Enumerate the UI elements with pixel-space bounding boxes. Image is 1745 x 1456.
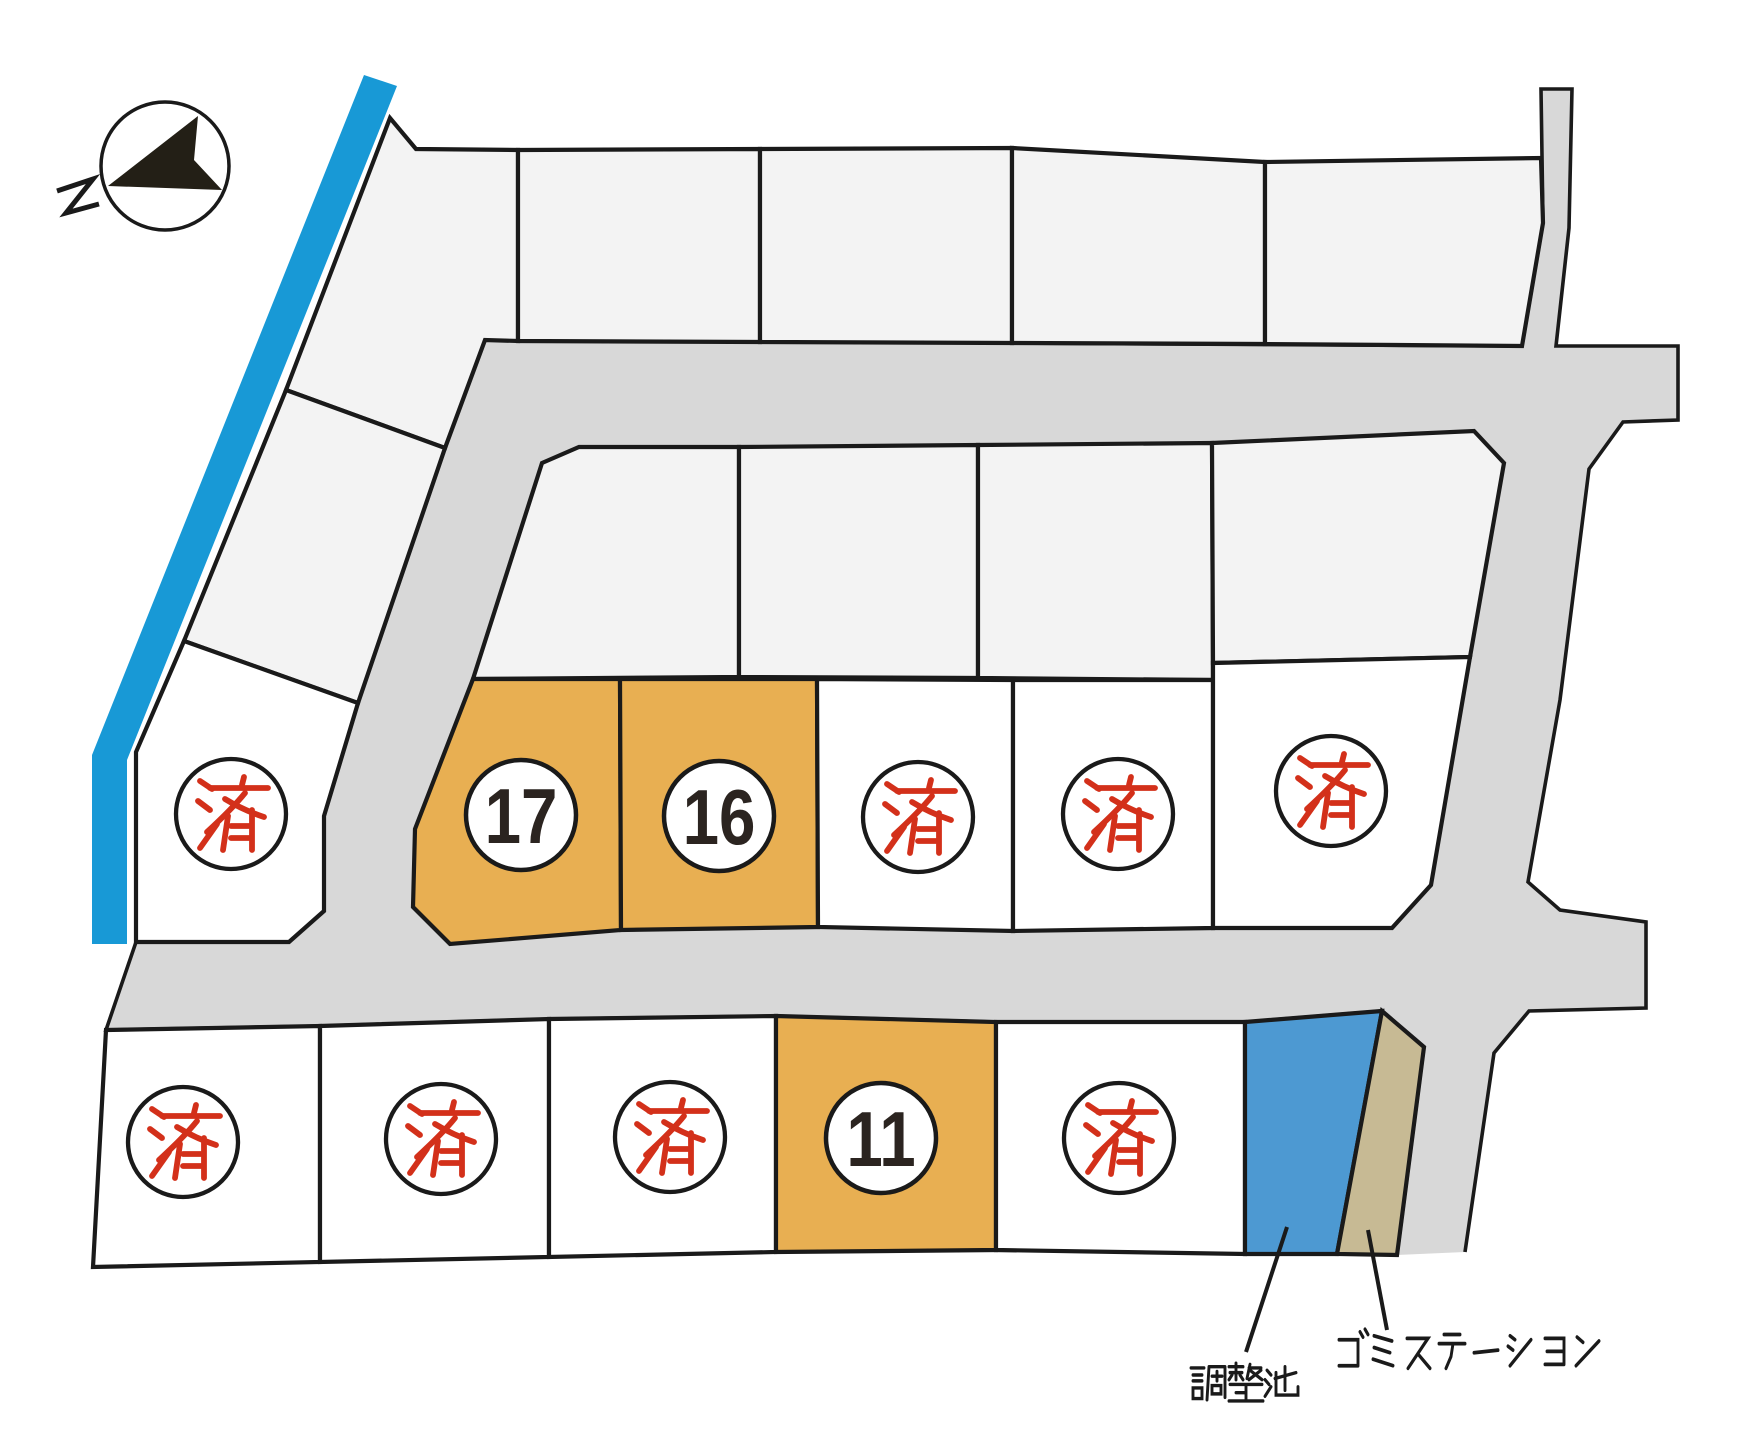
svg-text:11: 11 <box>846 1097 915 1184</box>
svg-text:17: 17 <box>485 774 558 861</box>
svg-text:16: 16 <box>683 775 756 862</box>
